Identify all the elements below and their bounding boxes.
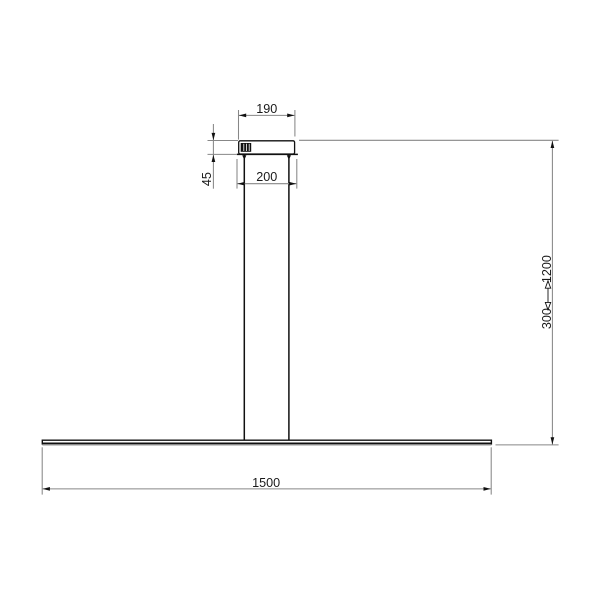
svg-text:1500: 1500	[252, 476, 280, 490]
svg-text:300: 300	[540, 308, 554, 329]
svg-text:200: 200	[256, 170, 277, 184]
svg-text:45: 45	[200, 172, 214, 186]
svg-text:190: 190	[256, 102, 277, 116]
svg-text:1200: 1200	[540, 255, 554, 283]
